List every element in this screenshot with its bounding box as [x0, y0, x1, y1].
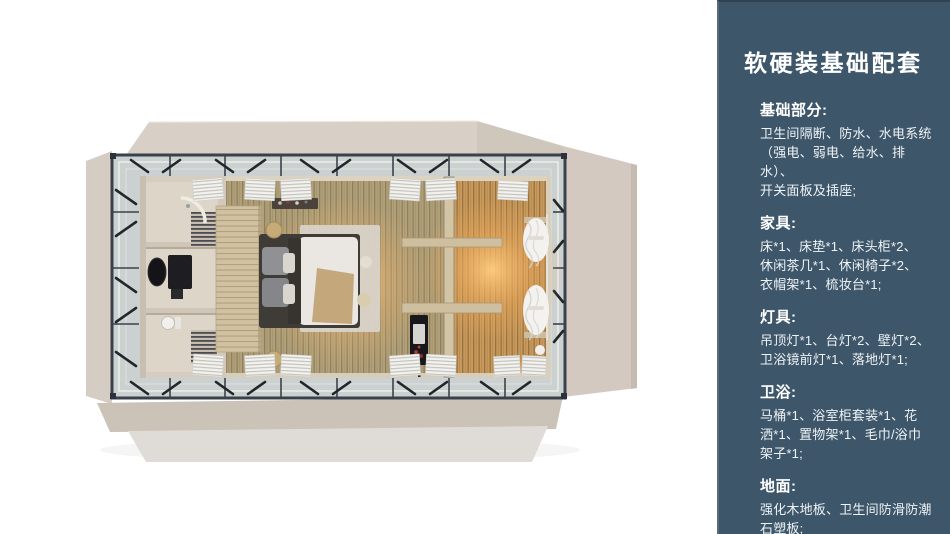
- section-furniture-heading: 家具:: [760, 214, 936, 234]
- floorplan-svg: [0, 0, 717, 534]
- section-furniture: 家具: 床*1、床垫*1、床头柜*2、 休闲茶几*1、休闲椅子*2、 衣帽架*1…: [744, 214, 936, 294]
- towel-roll: [535, 345, 545, 355]
- section-lighting-heading: 灯具:: [760, 308, 936, 328]
- toilet: [162, 317, 175, 330]
- section-basics: 基础部分: 卫生间隔断、防水、水电系统 （强电、弱电、给水、排水）、 开关面板及…: [744, 101, 936, 200]
- divider-wall: [444, 177, 454, 377]
- section-flooring: 地面: 强化木地板、卫生间防滑防潮 石塑板;: [744, 477, 936, 534]
- section-bathroom-heading: 卫浴:: [760, 383, 936, 403]
- shelf: [402, 238, 502, 247]
- vanity-counter: [168, 255, 192, 289]
- section-basics-body: 卫生间隔断、防水、水电系统 （强电、弱电、给水、排水）、 开关面板及插座;: [760, 124, 936, 200]
- section-furniture-body: 床*1、床垫*1、床头柜*2、 休闲茶几*1、休闲椅子*2、 衣帽架*1、梳妆台…: [760, 237, 936, 294]
- bathroom-area: [140, 176, 226, 378]
- sidebar-title: 软硬装基础配套: [744, 52, 936, 75]
- info-sidebar: 软硬装基础配套 基础部分: 卫生间隔断、防水、水电系统 （强电、弱电、给水、排水…: [717, 0, 950, 534]
- sink-basin: [148, 258, 166, 286]
- bed-throw-blanket: [312, 268, 354, 324]
- headboard-partition: [216, 206, 262, 352]
- shower-drain-icon: [186, 204, 190, 208]
- section-flooring-body: 强化木地板、卫生间防滑防潮 石塑板;: [760, 500, 936, 534]
- section-bathroom: 卫浴: 马桶*1、浴室柜套装*1、花 洒*1、置物架*1、毛巾/浴巾 架子*1;: [744, 383, 936, 463]
- section-basics-heading: 基础部分:: [760, 101, 936, 121]
- section-lighting-body: 吊顶灯*1、台灯*2、壁灯*2、 卫浴镜前灯*1、落地灯*1;: [760, 331, 936, 369]
- shelf: [402, 303, 502, 313]
- section-lighting: 灯具: 吊顶灯*1、台灯*2、壁灯*2、 卫浴镜前灯*1、落地灯*1;: [744, 308, 936, 369]
- bedside-stool: [266, 222, 282, 238]
- section-bathroom-body: 马桶*1、浴室柜套装*1、花 洒*1、置物架*1、毛巾/浴巾 架子*1;: [760, 406, 936, 463]
- slide-canvas: 软硬装基础配套 基础部分: 卫生间隔断、防水、水电系统 （强电、弱电、给水、排水…: [0, 0, 950, 534]
- section-flooring-heading: 地面:: [760, 477, 936, 497]
- floorplan-render: [0, 0, 717, 534]
